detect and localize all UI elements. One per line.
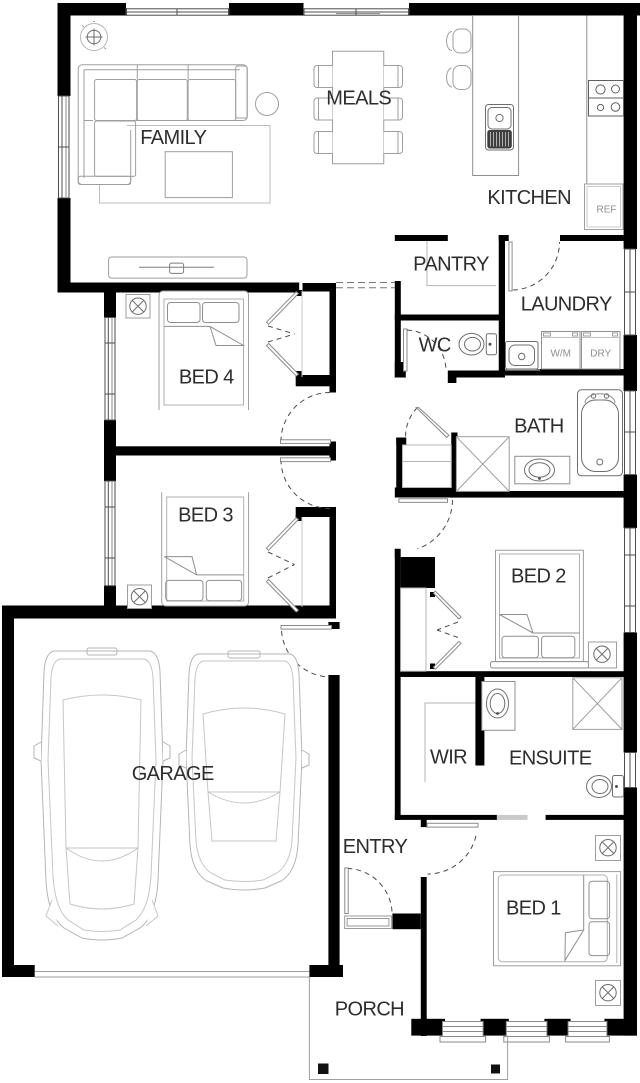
svg-text:BED 1: BED 1 (506, 898, 561, 920)
svg-text:BED 3: BED 3 (178, 505, 233, 527)
svg-text:WIR: WIR (430, 746, 467, 768)
svg-text:PANTRY: PANTRY (413, 254, 489, 276)
svg-text:WC: WC (419, 335, 451, 357)
svg-text:GARAGE: GARAGE (132, 763, 214, 785)
svg-text:KITCHEN: KITCHEN (487, 187, 571, 209)
svg-text:LAUNDRY: LAUNDRY (521, 293, 612, 315)
svg-text:DRY: DRY (590, 349, 611, 360)
svg-text:BED 4: BED 4 (179, 367, 234, 389)
svg-text:W/M: W/M (550, 349, 571, 360)
svg-text:BED 2: BED 2 (511, 565, 566, 587)
svg-text:PORCH: PORCH (335, 999, 404, 1021)
svg-text:ENSUITE: ENSUITE (509, 747, 592, 769)
svg-text:BATH: BATH (514, 415, 563, 437)
svg-text:MEALS: MEALS (326, 88, 391, 110)
svg-text:ENTRY: ENTRY (343, 836, 408, 858)
svg-text:REF: REF (597, 205, 617, 216)
svg-text:FAMILY: FAMILY (140, 127, 206, 149)
